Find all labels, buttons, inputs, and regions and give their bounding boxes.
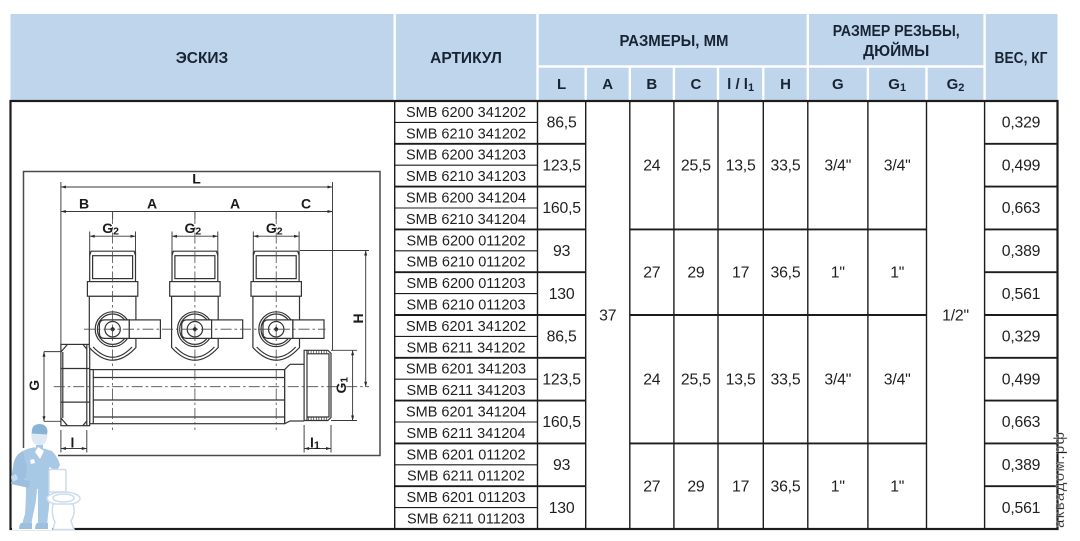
svg-text:АРТИКУЛ: АРТИКУЛ [430, 50, 502, 67]
svg-text:130: 130 [549, 500, 575, 517]
svg-text:0,663: 0,663 [1002, 200, 1041, 217]
svg-text:H: H [350, 313, 366, 323]
svg-text:37: 37 [599, 307, 616, 324]
svg-text:0,499: 0,499 [1002, 371, 1041, 388]
svg-text:SMB 6210 011202: SMB 6210 011202 [406, 255, 525, 271]
svg-text:SMB 6211 011203: SMB 6211 011203 [407, 512, 525, 528]
svg-text:B: B [79, 196, 89, 212]
svg-text:C: C [301, 196, 311, 212]
svg-text:123,5: 123,5 [542, 371, 581, 388]
svg-text:SMB 6211 341203: SMB 6211 341203 [406, 383, 525, 399]
svg-text:SMB 6211 341204: SMB 6211 341204 [406, 426, 525, 442]
svg-text:SMB 6200 341202: SMB 6200 341202 [406, 105, 526, 121]
svg-text:0,561: 0,561 [1002, 286, 1041, 303]
svg-text:аквадом.рф: аквадом.рф [1051, 431, 1068, 528]
svg-text:1": 1" [831, 478, 845, 495]
svg-text:3/4": 3/4" [884, 157, 911, 174]
svg-text:SMB 6201 341203: SMB 6201 341203 [406, 362, 526, 378]
svg-text:27: 27 [643, 478, 660, 495]
svg-text:33,5: 33,5 [771, 157, 801, 174]
svg-text:3/4": 3/4" [884, 371, 911, 388]
svg-text:SMB 6200 341203: SMB 6200 341203 [406, 148, 526, 164]
svg-text:H: H [780, 76, 791, 93]
svg-text:ЭСКИЗ: ЭСКИЗ [176, 50, 229, 67]
svg-text:SMB 6211 341202: SMB 6211 341202 [406, 340, 525, 356]
svg-text:РАЗМЕР РЕЗЬБЫ,: РАЗМЕР РЕЗЬБЫ, [833, 23, 960, 40]
svg-text:SMB 6210 341202: SMB 6210 341202 [406, 126, 526, 142]
svg-text:0,561: 0,561 [1002, 500, 1041, 517]
svg-text:160,5: 160,5 [542, 414, 581, 431]
svg-text:SMB 6211 011202: SMB 6211 011202 [407, 469, 525, 485]
svg-text:25,5: 25,5 [681, 157, 711, 174]
svg-text:33,5: 33,5 [771, 371, 801, 388]
svg-text:1": 1" [890, 264, 904, 281]
svg-text:l: l [70, 435, 74, 451]
svg-text:SMB 6210 341204: SMB 6210 341204 [406, 212, 526, 228]
svg-text:86,5: 86,5 [547, 115, 577, 132]
svg-text:160,5: 160,5 [542, 200, 581, 217]
svg-text:ДЮЙМЫ: ДЮЙМЫ [863, 42, 929, 60]
svg-text:SMB 6200 011203: SMB 6200 011203 [406, 276, 525, 292]
svg-text:A: A [602, 76, 613, 93]
svg-text:25,5: 25,5 [681, 371, 711, 388]
svg-text:0,499: 0,499 [1002, 157, 1041, 174]
svg-text:13,5: 13,5 [726, 157, 756, 174]
svg-text:17: 17 [732, 478, 749, 495]
svg-text:G: G [832, 76, 844, 93]
svg-text:G: G [26, 380, 42, 391]
svg-text:SMB 6200 011202: SMB 6200 011202 [406, 233, 525, 249]
svg-text:0,329: 0,329 [1002, 115, 1041, 132]
svg-text:SMB 6200 341204: SMB 6200 341204 [406, 191, 526, 207]
svg-text:SMB 6201 011202: SMB 6201 011202 [406, 447, 525, 463]
svg-text:L: L [192, 171, 201, 187]
svg-text:24: 24 [643, 157, 661, 174]
svg-text:SMB 6201 341204: SMB 6201 341204 [406, 405, 526, 421]
svg-text:SMB 6201 341202: SMB 6201 341202 [406, 319, 526, 335]
svg-text:3/4": 3/4" [824, 371, 851, 388]
svg-text:29: 29 [687, 478, 705, 495]
svg-text:1": 1" [831, 264, 845, 281]
svg-text:SMB 6201 011203: SMB 6201 011203 [406, 490, 525, 506]
svg-text:86,5: 86,5 [547, 329, 577, 346]
svg-text:93: 93 [553, 243, 571, 260]
svg-text:ВЕС, КГ: ВЕС, КГ [995, 50, 1048, 67]
svg-text:93: 93 [553, 457, 571, 474]
svg-text:13,5: 13,5 [726, 371, 756, 388]
svg-text:36,5: 36,5 [771, 478, 801, 495]
svg-text:SMB 6210 341203: SMB 6210 341203 [406, 169, 526, 185]
svg-text:0,663: 0,663 [1002, 414, 1041, 431]
svg-text:27: 27 [643, 264, 660, 281]
svg-text:0,389: 0,389 [1002, 243, 1041, 260]
svg-text:B: B [646, 76, 657, 93]
svg-text:1": 1" [890, 478, 904, 495]
svg-text:3/4": 3/4" [824, 157, 851, 174]
svg-text:123,5: 123,5 [542, 157, 581, 174]
svg-text:24: 24 [643, 371, 661, 388]
svg-text:130: 130 [549, 286, 575, 303]
svg-text:A: A [230, 196, 240, 212]
svg-text:17: 17 [732, 264, 749, 281]
svg-text:C: C [690, 76, 701, 93]
svg-text:0,329: 0,329 [1002, 329, 1041, 346]
svg-text:РАЗМЕРЫ, ММ: РАЗМЕРЫ, ММ [620, 33, 729, 50]
svg-text:L: L [557, 76, 566, 93]
svg-text:29: 29 [687, 264, 705, 281]
svg-text:36,5: 36,5 [771, 264, 801, 281]
svg-text:A: A [147, 196, 157, 212]
svg-text:0,389: 0,389 [1002, 457, 1041, 474]
svg-text:1/2": 1/2" [942, 307, 969, 324]
svg-text:SMB 6210 011203: SMB 6210 011203 [406, 298, 525, 314]
